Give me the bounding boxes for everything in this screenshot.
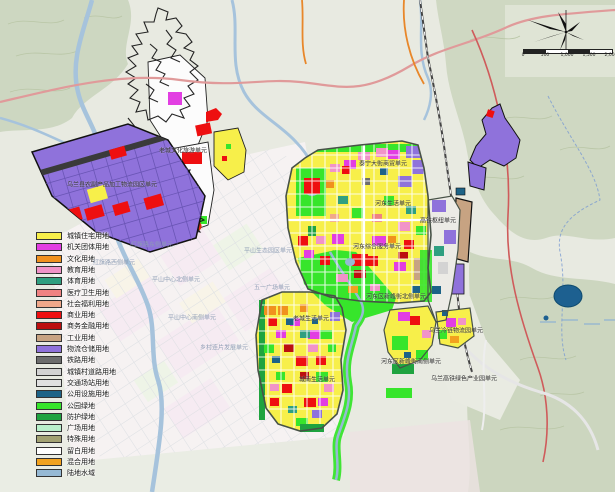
planning-map: 城镇住宅用地机关团体用地文化用地教育用地体育用地医疗卫生用地社会福利用地商业用地… (0, 0, 615, 492)
scale-tick-label: 1,500 (583, 53, 596, 58)
scale-tick-label: 500 (541, 53, 550, 58)
map-canvas (0, 0, 615, 492)
scale-tick-label: 0 (522, 53, 525, 58)
scale-tick-label: 2,000 (605, 53, 615, 58)
scale-tick-label: 1,000 (561, 53, 574, 58)
scale-bar: 05001,0001,5002,000 (523, 49, 613, 61)
